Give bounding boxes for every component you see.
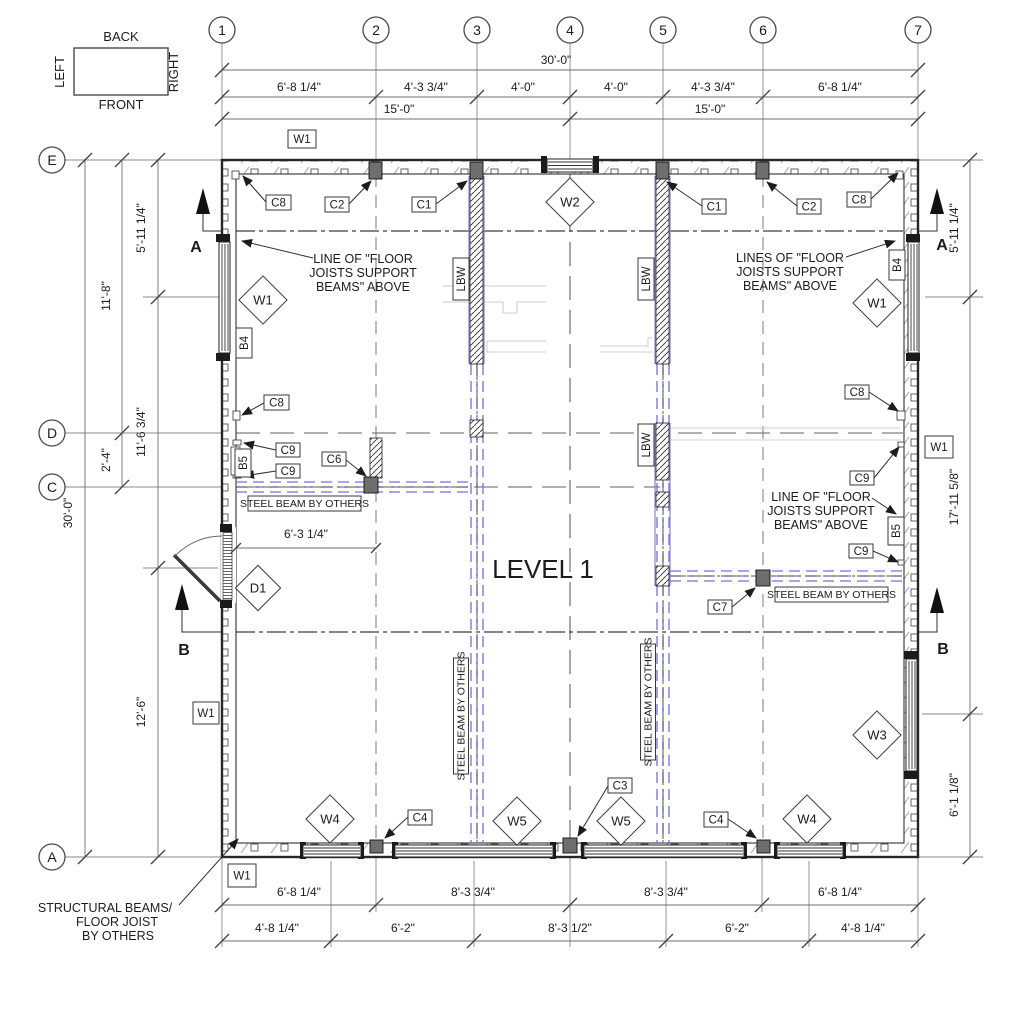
column-tag-c8-tr: C8 <box>852 195 867 207</box>
dim-top-seg-1: 6'-8 1/4" <box>277 80 321 94</box>
orientation-back-label: BACK <box>103 29 139 44</box>
column-c4-right <box>757 840 770 853</box>
beam-tag-b5-left: B5 <box>238 456 250 470</box>
dim-left-11-6: 11'-6 3/4" <box>134 407 148 457</box>
column-tag-c9-r2: C9 <box>854 546 869 558</box>
lbw-wall-grid5-top <box>656 176 669 364</box>
note-line-mid-1: LINE OF "FLOOR <box>771 490 871 504</box>
wall-post-c9-left-1 <box>233 440 241 445</box>
column-tag-c1-left: C1 <box>417 200 432 212</box>
wall-tag-w4-left: W4 <box>320 812 340 827</box>
note-structural-1: STRUCTURAL BEAMS/ <box>38 901 173 915</box>
window-b4-right <box>906 234 920 361</box>
door-tag-d1: D1 <box>250 581 267 596</box>
dim-top-seg-5: 4'-3 3/4" <box>691 80 735 94</box>
section-a-label-right: A <box>936 237 948 254</box>
orientation-front-label: FRONT <box>99 97 144 112</box>
window-w2-top <box>541 156 599 173</box>
column-c1-left <box>470 162 483 179</box>
column-tag-c4-left: C4 <box>413 813 428 825</box>
dim-bot2-3: 8'-3 1/2" <box>548 921 592 935</box>
dim-right-5-11: 5'-11 1/4" <box>947 203 961 253</box>
grid-row-D: D <box>47 425 57 441</box>
dim-top-half-2: 15'-0" <box>695 102 726 116</box>
wall-tag-w1-right-box: W1 <box>930 442 947 454</box>
dim-right-6-1: 6'-1 1/8" <box>947 773 961 817</box>
lbw-wall-grid2 <box>370 438 382 478</box>
dim-left-12-6: 12'-6" <box>134 697 148 728</box>
dim-left-2-4: 2'-4" <box>99 448 113 472</box>
wall-tag-w3: W3 <box>867 728 887 743</box>
grid-row-E: E <box>47 152 56 168</box>
dim-top-seg-2: 4'-3 3/4" <box>404 80 448 94</box>
dim-bot1-3: 8'-3 3/4" <box>644 885 688 899</box>
steel-beam-label-h2: STEEL BEAM BY OTHERS <box>767 589 896 601</box>
note-line-mid-3: BEAMS" ABOVE <box>774 518 868 532</box>
column-tag-c7: C7 <box>713 602 728 614</box>
floor-plan-sheet: BACK FRONT LEFT RIGHT 1 2 3 4 5 6 7 E D … <box>0 0 1024 1027</box>
grid-col-6: 6 <box>759 22 767 38</box>
grid-bubbles <box>39 17 931 870</box>
column-tag-c9-l2: C9 <box>281 466 296 478</box>
dim-top-seg-4: 4'-0" <box>604 80 628 94</box>
dim-overall-height: 30'-0" <box>61 498 75 529</box>
window-w3-right <box>904 651 918 779</box>
column-c1-right <box>656 162 669 179</box>
orientation-key: BACK FRONT LEFT RIGHT <box>52 29 181 112</box>
grid-bubble-labels: 1 2 3 4 5 6 7 E D C A <box>47 22 922 865</box>
note-line-mid-2: JOISTS SUPPORT <box>767 504 875 518</box>
grid-col-1: 1 <box>218 22 226 38</box>
orientation-left-label: LEFT <box>52 56 67 88</box>
lbw-tag-grid3: LBW <box>456 266 468 291</box>
steel-beam-label-v1: STEEL BEAM BY OTHERS <box>456 652 468 781</box>
annotations: STEEL BEAM BY OTHERS STEEL BEAM BY OTHER… <box>38 241 896 943</box>
lbw-tag-grid5-top: LBW <box>641 266 653 291</box>
corner-column-top-left <box>232 171 239 179</box>
beam-tag-b4-left: B4 <box>239 335 251 350</box>
dim-bot2-4: 6'-2" <box>725 921 749 935</box>
note-line-left-2: JOISTS SUPPORT <box>309 266 417 280</box>
note-lines-right-3: BEAMS" ABOVE <box>743 279 837 293</box>
section-b-arrow-left <box>175 584 189 610</box>
grid-col-5: 5 <box>659 22 667 38</box>
steel-beam-label-v2: STEEL BEAM BY OTHERS <box>643 638 655 767</box>
wall-tag-w1-right: W1 <box>867 296 887 311</box>
section-b-label-left: B <box>178 642 190 659</box>
note-line-left-1: LINE OF "FLOOR <box>313 252 413 266</box>
hatched-column-grid3-d <box>470 420 483 437</box>
page-title: LEVEL 1 <box>492 554 594 584</box>
window-bottom-1 <box>300 842 364 859</box>
dim-top-seg-6: 6'-8 1/4" <box>818 80 862 94</box>
dim-right-17-11: 17'-11 5/8" <box>947 469 961 525</box>
dim-bot1-1: 6'-8 1/4" <box>277 885 321 899</box>
wall-tag-w1-top: W1 <box>293 134 310 146</box>
corner-column-top-right <box>896 171 903 179</box>
dim-ticks-left <box>78 153 165 864</box>
section-b-arrow-right <box>930 587 944 613</box>
column-tag-c4-right: C4 <box>709 815 724 827</box>
orientation-box <box>74 48 168 95</box>
grid-col-7: 7 <box>914 22 922 38</box>
column-tag-c2-right: C2 <box>802 202 817 214</box>
window-bottom-2 <box>392 842 556 859</box>
lbw-tag-grid5-mid: LBW <box>641 432 653 457</box>
grid-row-A: A <box>47 849 57 865</box>
dim-bot2-5: 4'-8 1/4" <box>841 921 885 935</box>
lbw-wall-grid5-mid <box>656 423 669 480</box>
grid-col-4: 4 <box>566 22 574 38</box>
column-tag-c8-mr: C8 <box>850 387 865 399</box>
beam-tag-b4-right: B4 <box>892 257 904 272</box>
door-dimension: 6'-3 1/4" <box>231 527 381 553</box>
wall-tag-w5-right: W5 <box>611 814 631 829</box>
lbw-wall-grid3 <box>470 176 483 364</box>
dimensions-right: 5'-11 1/4" 17'-11 5/8" 6'-1 1/8" <box>918 153 983 864</box>
column-c7 <box>756 570 770 586</box>
dim-left-11-8: 11'-8" <box>99 281 113 311</box>
steel-beam-label-h1: STEEL BEAM BY OTHERS <box>240 498 369 510</box>
load-bearing-walls <box>370 176 670 586</box>
note-line-left-3: BEAMS" ABOVE <box>316 280 410 294</box>
column-tag-c1-right: C1 <box>707 202 722 214</box>
wall-post-c9-right-1 <box>898 442 904 447</box>
column-tag-c3: C3 <box>613 781 628 793</box>
grid-col-2: 2 <box>372 22 380 38</box>
dim-bot2-2: 6'-2" <box>391 921 415 935</box>
orientation-right-label: RIGHT <box>166 52 181 93</box>
dim-left-5-11: 5'-11 1/4" <box>134 203 148 253</box>
note-lines-right-1: LINES OF "FLOOR <box>736 251 844 265</box>
dimensions-left: 30'-0" 11'-8" 2'-4" 5'-11 1/4" 11'-6 3/4… <box>61 153 219 864</box>
window-bottom-3 <box>581 842 747 859</box>
columns <box>364 162 770 853</box>
window-bottom-4 <box>774 842 846 859</box>
wall-tag-w5-left: W5 <box>507 814 527 829</box>
window-b4-left <box>216 234 230 361</box>
floor-plan-drawing: BACK FRONT LEFT RIGHT 1 2 3 4 5 6 7 E D … <box>0 0 1024 1027</box>
wall-post-c9-right-2 <box>898 560 904 565</box>
door-panel <box>223 532 232 600</box>
dimensions-bottom: 6'-8 1/4" 8'-3 3/4" 8'-3 3/4" 6'-8 1/4" … <box>215 857 925 948</box>
wall-post-c8-left <box>233 411 240 420</box>
note-structural-3: BY OTHERS <box>82 929 154 943</box>
dim-top-seg-3: 4'-0" <box>511 80 535 94</box>
lbw-wall-grid5-mid2 <box>656 492 669 507</box>
dim-bot1-2: 8'-3 3/4" <box>451 885 495 899</box>
column-tag-c9-r1: C9 <box>855 473 870 485</box>
wall-tag-w1-left: W1 <box>253 293 273 308</box>
column-c2-left <box>369 162 382 179</box>
column-c4-left <box>370 840 383 853</box>
door-swing-arc <box>175 536 222 556</box>
column-tag-c9-l1: C9 <box>281 445 296 457</box>
section-a-arrow-right <box>930 188 944 214</box>
dim-overall-width: 30'-0" <box>541 53 572 67</box>
wall-tag-w4-right: W4 <box>797 812 817 827</box>
grid-col-3: 3 <box>473 22 481 38</box>
wall-tag-w1-bottom: W1 <box>233 871 250 883</box>
column-c2-right <box>756 162 769 179</box>
dim-bot2-1: 4'-8 1/4" <box>255 921 299 935</box>
wall-post-c8-right <box>897 411 905 420</box>
wall-tag-w2: W2 <box>560 195 580 210</box>
column-tag-c2-left: C2 <box>330 200 345 212</box>
beam-tag-b5-right: B5 <box>891 524 903 538</box>
column-tag-c8-tl: C8 <box>271 198 286 210</box>
dim-bot1-4: 6'-8 1/4" <box>818 885 862 899</box>
wall-tag-w1-leftwall: W1 <box>197 708 214 720</box>
column-c3 <box>563 838 577 853</box>
section-b-label-right: B <box>937 641 949 658</box>
dim-top-half-1: 15'-0" <box>384 102 415 116</box>
floor-above-outline <box>443 286 900 440</box>
section-a-label-left: A <box>190 239 202 256</box>
section-a-arrow-left <box>196 188 210 214</box>
column-tag-c6: C6 <box>327 454 342 466</box>
note-structural-2: FLOOR JOIST <box>76 915 158 929</box>
note-lines-right-2: JOISTS SUPPORT <box>736 265 844 279</box>
lbw-wall-grid5-beam-end <box>656 566 669 586</box>
column-tag-c8-ml: C8 <box>269 398 284 410</box>
dim-door: 6'-3 1/4" <box>284 527 328 541</box>
grid-row-C: C <box>47 479 57 495</box>
column-c6 <box>364 477 378 493</box>
